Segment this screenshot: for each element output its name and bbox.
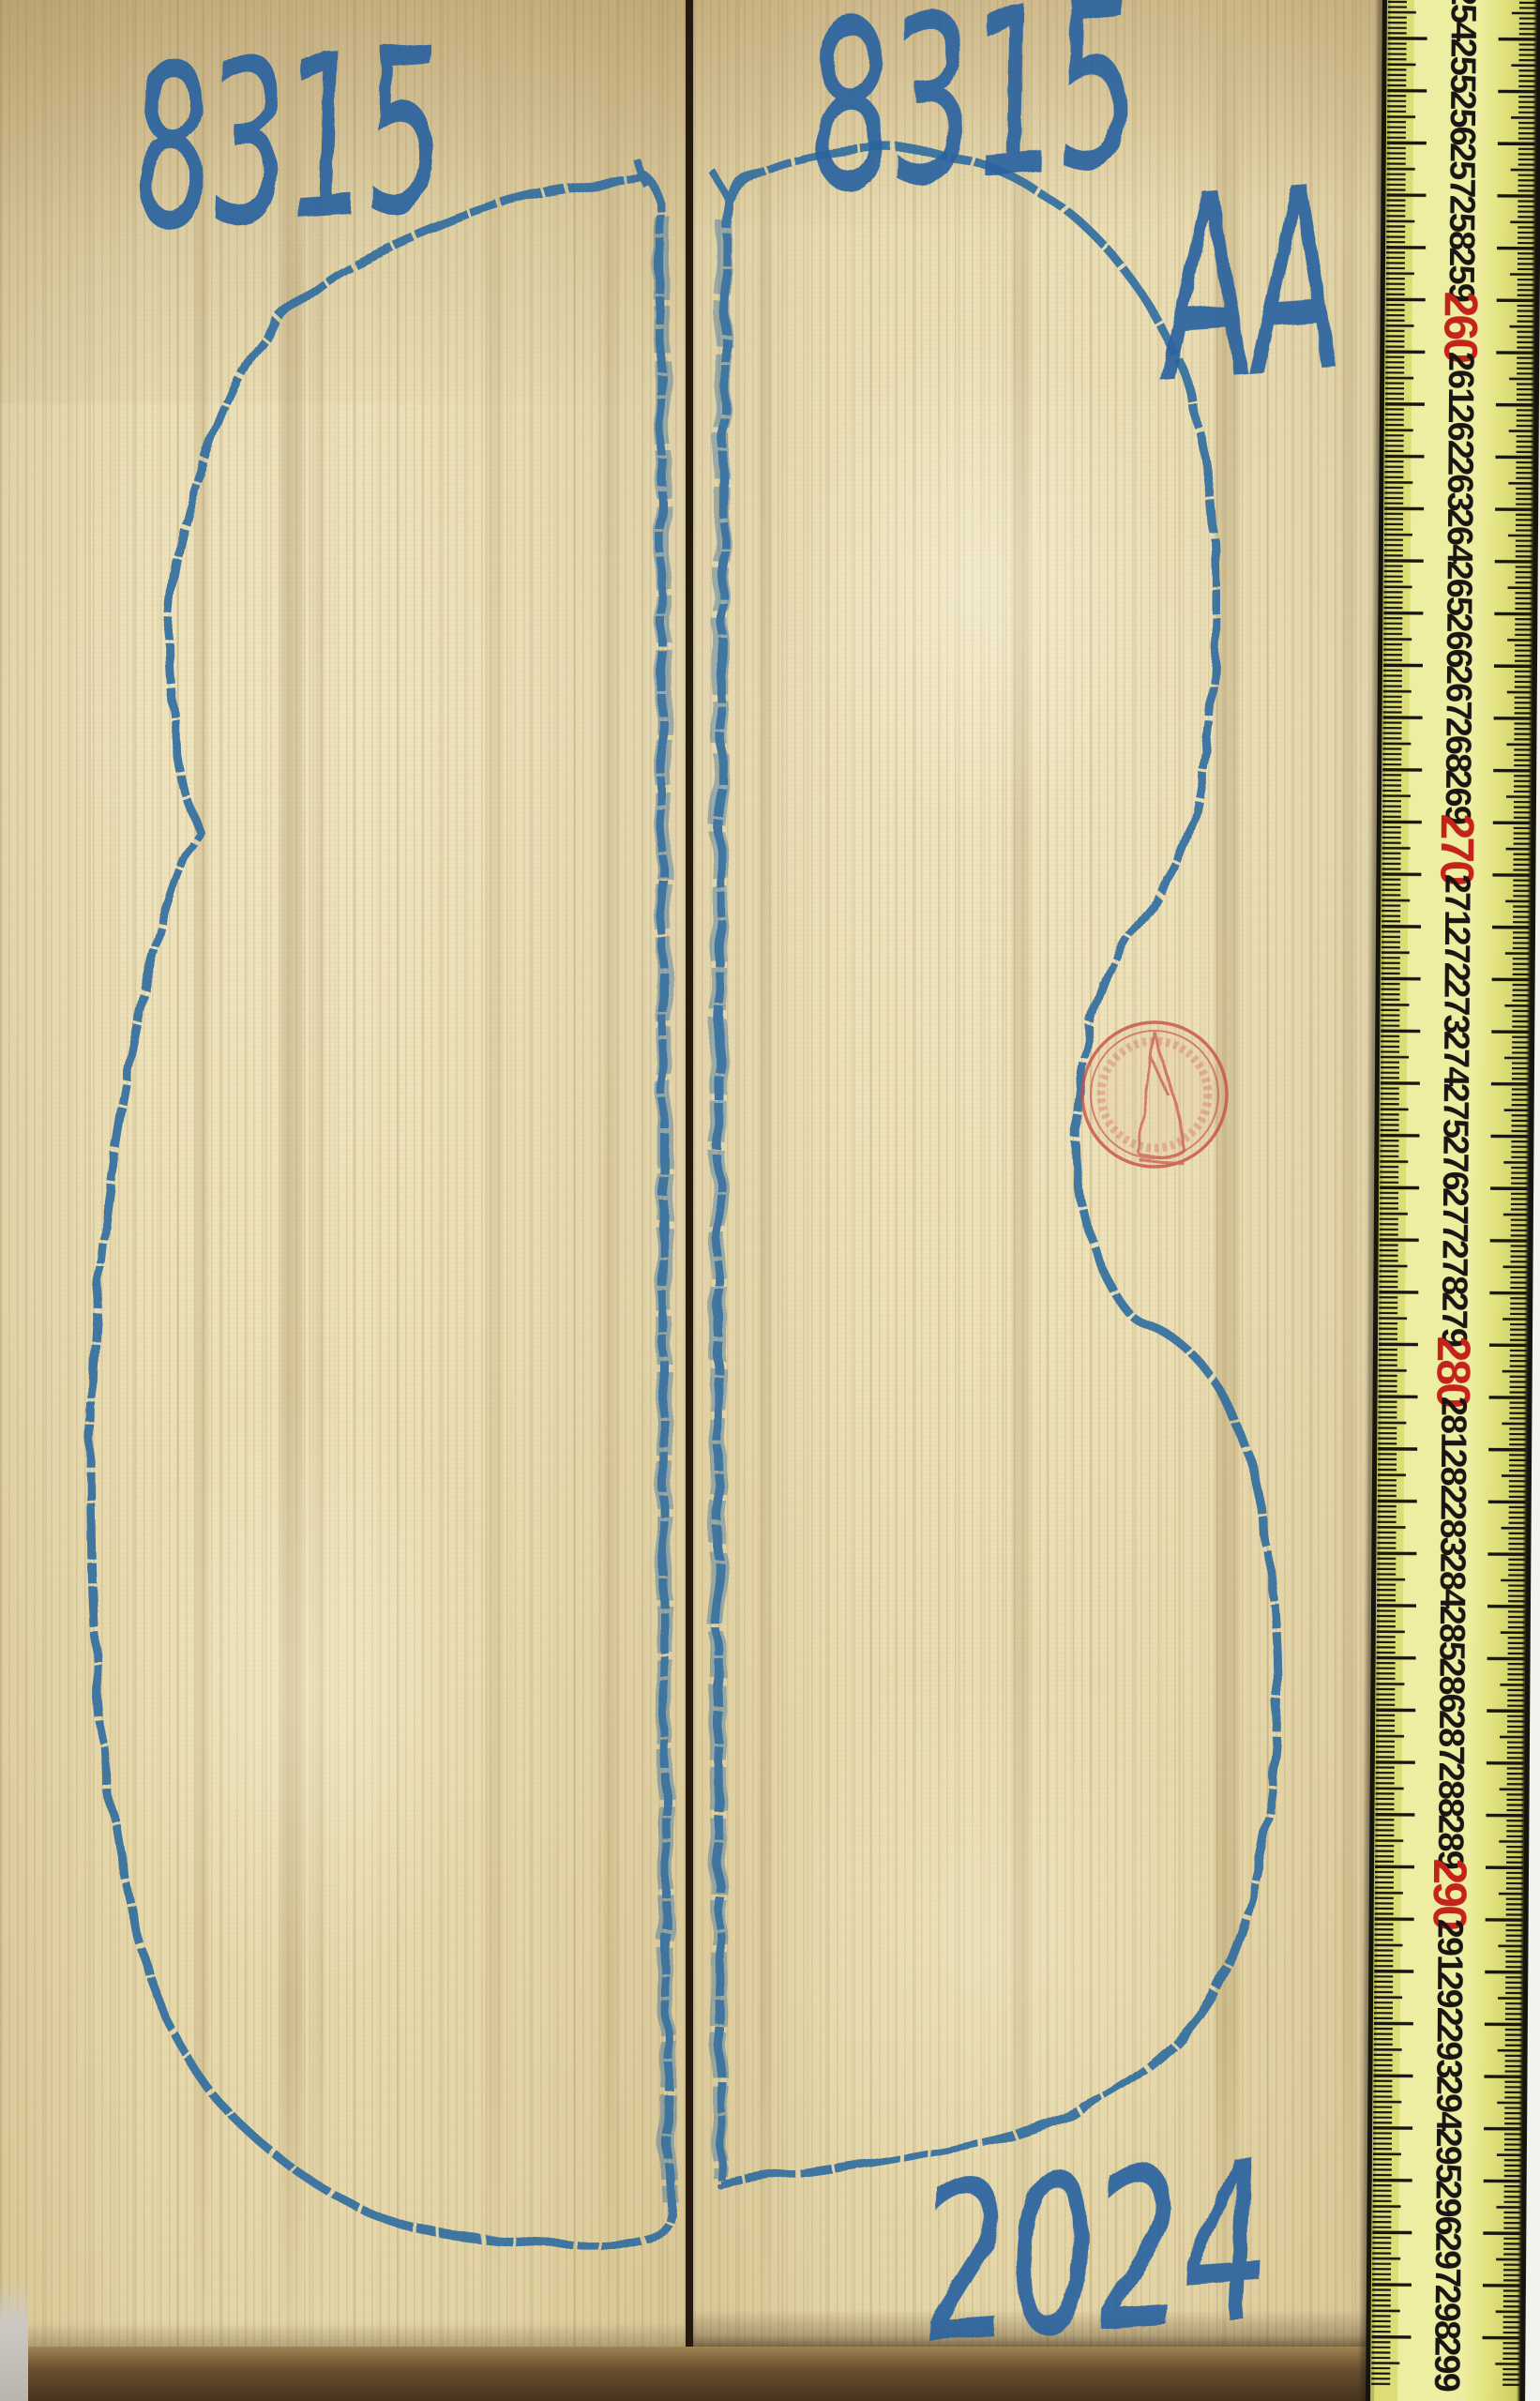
ruler-cm-label: 291 [1429, 1919, 1469, 1975]
ruler-cm-label: 287 [1431, 1710, 1471, 1765]
ruler-cm-label: 268 [1438, 717, 1477, 773]
ruler-cm-label: 278 [1434, 1240, 1473, 1295]
ruler-cm-label: 283 [1432, 1501, 1472, 1556]
markings-overlay: 8315 8315 AA 2024 [0, 0, 1540, 2401]
year-marking: 2024 [914, 2114, 1276, 2391]
ruler-cm-label: 281 [1433, 1397, 1472, 1453]
ruler-cm-label: 265 [1439, 560, 1478, 616]
maker-stamp [1082, 1022, 1227, 1167]
ruler-cm-label: 271 [1437, 874, 1476, 930]
ruler-cm-label: 299 [1427, 2336, 1466, 2392]
ruler-cm-label: 264 [1440, 508, 1479, 565]
ruler-cm-label: 277 [1435, 1187, 1474, 1243]
ruler-cm-label: 272 [1437, 926, 1476, 981]
cello-outline-left [91, 174, 669, 2245]
ruler-cm-label: 285 [1432, 1605, 1472, 1661]
ruler-cm-label: 267 [1439, 665, 1478, 720]
ruler-cm-label: 255 [1442, 38, 1482, 94]
serial-number-left: 8315 [125, 0, 452, 280]
ruler-cm-label: 257 [1442, 143, 1481, 198]
outline-spur-right [714, 173, 727, 199]
ruler-cm-label: 254 [1443, 0, 1483, 41]
ruler-cm-label: 276 [1435, 1135, 1474, 1190]
ruler-cm-label: 256 [1442, 90, 1482, 145]
ruler-cm-label: 261 [1441, 352, 1480, 408]
ruler-cm-label: 286 [1431, 1657, 1471, 1713]
cello-outline-right-joint [717, 220, 724, 2178]
ruler-cm-label: 295 [1428, 2127, 1468, 2183]
ruler-cm-label: 298 [1427, 2284, 1467, 2339]
serial-number-right: 8315 [798, 0, 1148, 244]
ruler-cm-label: 293 [1428, 2023, 1468, 2078]
ruler-scale: 2542552562572582592602612622632642652662… [1366, 0, 1540, 2401]
ruler-cm-label: 294 [1428, 2076, 1468, 2132]
ruler-cm-label: 266 [1439, 612, 1478, 668]
grade-marking: AA [1143, 134, 1350, 439]
ruler-cm-label: 297 [1427, 2232, 1467, 2288]
ruler-cm-label: 284 [1432, 1553, 1472, 1609]
ruler-cm-label: 296 [1427, 2180, 1467, 2235]
ruler-cm-label: 273 [1436, 978, 1475, 1034]
ruler-cm-label: 263 [1440, 456, 1479, 511]
ruler-cm-label: 262 [1441, 403, 1480, 459]
tape-ruler: 2542552562572582592602612622632642652662… [1366, 0, 1540, 2401]
ruler-cm-label: 292 [1429, 1971, 1469, 2026]
cello-outline-left-joint [661, 216, 668, 2199]
ruler-cm-label: 274 [1436, 1031, 1475, 1087]
ruler-cm-label: 282 [1433, 1448, 1472, 1503]
ruler-cm-label: 258 [1442, 195, 1481, 250]
photo-root: 8315 8315 AA 2024 2542552562572582592602… [0, 0, 1540, 2401]
ruler-cm-label: 275 [1435, 1082, 1474, 1139]
ruler-cm-label: 288 [1430, 1762, 1470, 1818]
cello-outline-right [718, 147, 1278, 2186]
